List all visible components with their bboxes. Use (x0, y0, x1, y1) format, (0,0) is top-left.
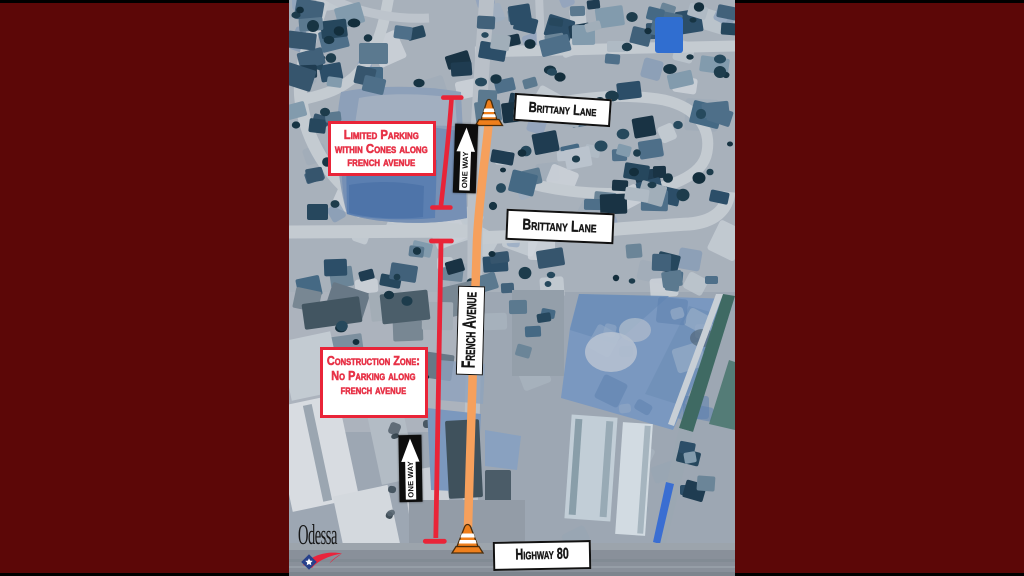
svg-text:ONE WAY: ONE WAY (460, 151, 470, 188)
svg-text:ONE WAY: ONE WAY (405, 461, 415, 498)
